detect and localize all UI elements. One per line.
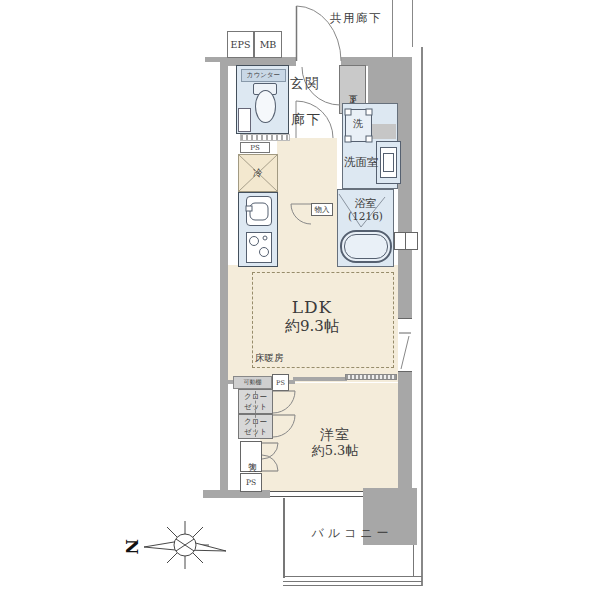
washroom-label: 洗面室 — [344, 156, 379, 170]
balcony-label-text: バルコニー — [311, 526, 392, 540]
mb-label: MB — [260, 39, 277, 50]
shoe-cabinet-label: 下足入 — [346, 88, 359, 91]
kitchen-sink — [246, 196, 272, 226]
western-room-label-group: 洋室 約5.3帖 — [280, 426, 390, 458]
balcony-label: バルコニー — [292, 526, 412, 540]
toilet-cabinet — [238, 108, 251, 132]
wall-stub-left — [205, 57, 220, 62]
common-corridor-label: 共用廊下 — [330, 12, 382, 26]
sliding-door-ldk-west — [345, 374, 397, 380]
vanity-inner — [383, 153, 394, 172]
balcony-bottom-line-2 — [283, 581, 422, 582]
balcony-window-line-2 — [270, 496, 363, 497]
storage-bottom: 物入 — [240, 441, 262, 472]
north-mark: N — [122, 539, 142, 555]
bathtub-inner — [344, 234, 388, 259]
partition-ldk-west-2 — [293, 377, 347, 381]
ps-bottom-label: PS — [246, 478, 256, 487]
floor-heating-label: 床暖房 — [255, 352, 284, 363]
refrigerator-label: 冷 — [253, 167, 263, 178]
ldk-label: LDK — [292, 297, 333, 317]
movable-shelf-label: 可動棚 — [244, 378, 262, 387]
ldk-label-group: LDK 約9.3帖 — [262, 297, 362, 335]
wall-left — [220, 57, 228, 498]
western-room-size-label: 約5.3帖 — [312, 443, 359, 459]
balcony-right-line — [413, 545, 414, 576]
ldk-size-label: 約9.3帖 — [285, 317, 339, 335]
ps-top-label: PS — [250, 144, 260, 152]
washroom-shelf — [372, 124, 396, 139]
bathroom-size-label: (1216) — [348, 210, 383, 223]
storage-bottom-label: 物入 — [246, 456, 257, 458]
closet-divider — [255, 391, 256, 437]
balcony-window-line-1 — [270, 491, 363, 492]
ps-mid-label: PS — [276, 379, 285, 387]
ldk-storage-label: 物入 — [315, 205, 330, 215]
outer-boundary-line — [421, 47, 423, 586]
balcony-bottom-line-3 — [283, 585, 422, 586]
balcony-bottom-line-1 — [283, 576, 422, 577]
corridor-line-right — [412, 0, 413, 47]
entrance-label: 玄関 — [290, 75, 321, 91]
kitchen-stove — [246, 232, 272, 263]
wall-right-upper — [398, 103, 412, 318]
floor-plan: EPS MB カウンター 下足入 PS 物入 可動棚 PS クロー ゼット — [0, 0, 600, 600]
bathroom-label: 浴室 — [355, 197, 377, 210]
toilet-bowl — [255, 90, 276, 123]
ldk-storage-box: 物入 — [311, 203, 333, 216]
threshold-hatch — [240, 134, 290, 141]
pipe-space-divider — [405, 232, 406, 250]
washer-label: 洗 — [353, 118, 363, 130]
pipe-space-right — [394, 232, 418, 250]
ps-box-mid: PS — [272, 374, 289, 391]
ldk-side-window — [398, 318, 412, 372]
wall-right-lower — [398, 372, 412, 490]
bathroom-label-group: 浴室 (1216) — [337, 197, 394, 223]
western-room-label: 洋室 — [320, 426, 350, 443]
eps-shaft: EPS — [227, 31, 254, 58]
toilet-counter-label: カウンター — [247, 71, 280, 80]
toilet-counter: カウンター — [241, 69, 286, 82]
eps-label: EPS — [231, 39, 251, 50]
hallway-label: 廊下 — [291, 111, 322, 127]
compass-icon — [144, 521, 226, 569]
movable-shelf: 可動棚 — [233, 376, 272, 389]
ps-box-top: PS — [240, 142, 270, 153]
ps-box-bottom: PS — [240, 473, 262, 492]
balcony-left-line — [283, 498, 285, 578]
corridor-line-left — [392, 0, 393, 58]
wall-block-top-right — [368, 57, 412, 103]
mb-meter-box: MB — [254, 31, 282, 58]
